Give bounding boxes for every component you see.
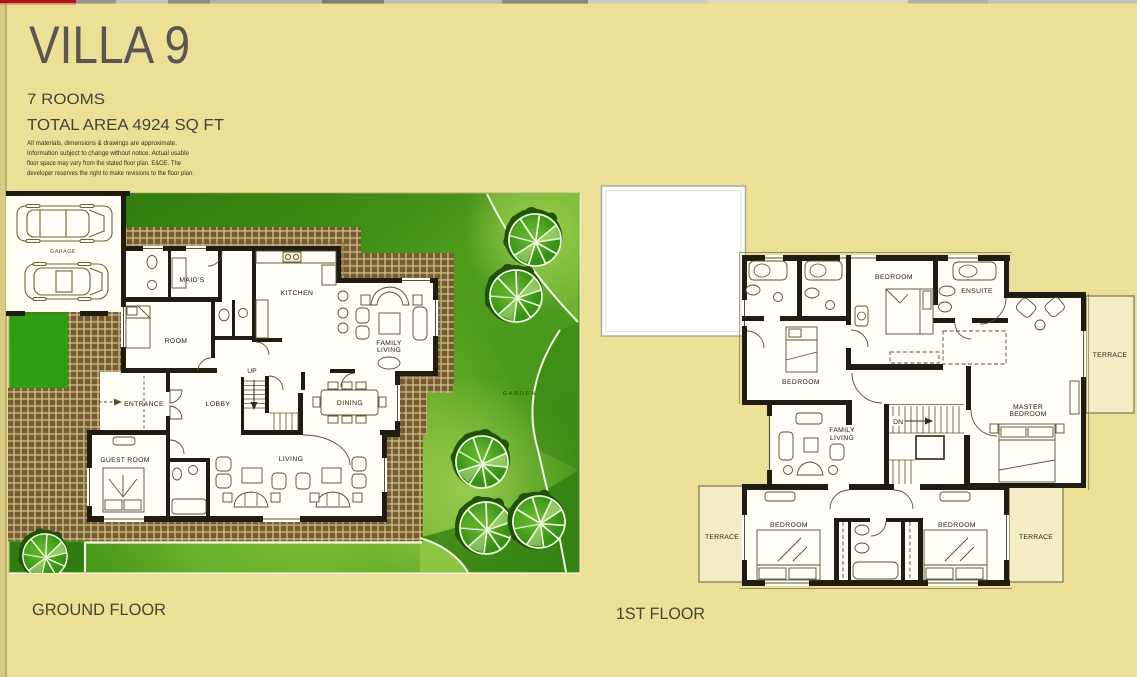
svg-text:GARAGE: GARAGE	[50, 249, 76, 255]
svg-text:LIVING: LIVING	[377, 347, 401, 354]
svg-text:7 ROOMS: 7 ROOMS	[27, 91, 105, 108]
svg-text:BEDROOM: BEDROOM	[782, 379, 820, 386]
svg-text:DINING: DINING	[337, 400, 363, 407]
svg-text:All materials, dimensions & dr: All materials, dimensions & drawings are…	[27, 140, 177, 147]
svg-text:ROOM: ROOM	[165, 338, 188, 345]
svg-text:BEDROOM: BEDROOM	[938, 522, 976, 529]
svg-text:developer reserves the right t: developer reserves the right to make rev…	[27, 170, 194, 177]
svg-text:UP: UP	[247, 368, 257, 375]
svg-text:VILLA 9: VILLA 9	[29, 16, 190, 75]
svg-text:BEDROOM: BEDROOM	[1009, 411, 1046, 418]
svg-text:ENSUITE: ENSUITE	[961, 288, 993, 295]
svg-text:MASTER: MASTER	[1013, 404, 1043, 411]
svg-text:TERRACE: TERRACE	[705, 534, 739, 541]
svg-text:floor space may vary from the: floor space may vary from the stated flo…	[27, 160, 181, 167]
svg-text:1ST FLOOR: 1ST FLOOR	[616, 605, 705, 623]
svg-text:BEDROOM: BEDROOM	[770, 522, 808, 529]
svg-text:TOTAL AREA 4924 SQ FT: TOTAL AREA 4924 SQ FT	[27, 117, 224, 134]
svg-text:TERRACE: TERRACE	[1019, 534, 1053, 541]
svg-text:BEDROOM: BEDROOM	[875, 274, 913, 281]
svg-text:LIVING: LIVING	[830, 435, 854, 442]
svg-text:GROUND FLOOR: GROUND FLOOR	[32, 601, 166, 619]
svg-text:DN: DN	[893, 419, 903, 426]
svg-text:GUEST ROOM: GUEST ROOM	[100, 457, 149, 464]
svg-text:ENTRANCE: ENTRANCE	[124, 401, 164, 408]
svg-text:MAID'S: MAID'S	[179, 277, 204, 284]
svg-text:KITCHEN: KITCHEN	[281, 290, 314, 297]
svg-text:LOBBY: LOBBY	[206, 401, 231, 408]
svg-text:TERRACE: TERRACE	[1093, 352, 1128, 359]
svg-text:GARDEN: GARDEN	[503, 391, 537, 397]
svg-text:FAMILY: FAMILY	[829, 427, 855, 434]
svg-text:Information subject to change: Information subject to change without no…	[27, 150, 189, 157]
svg-text:FAMILY: FAMILY	[376, 340, 402, 347]
svg-text:LIVING: LIVING	[279, 456, 304, 463]
